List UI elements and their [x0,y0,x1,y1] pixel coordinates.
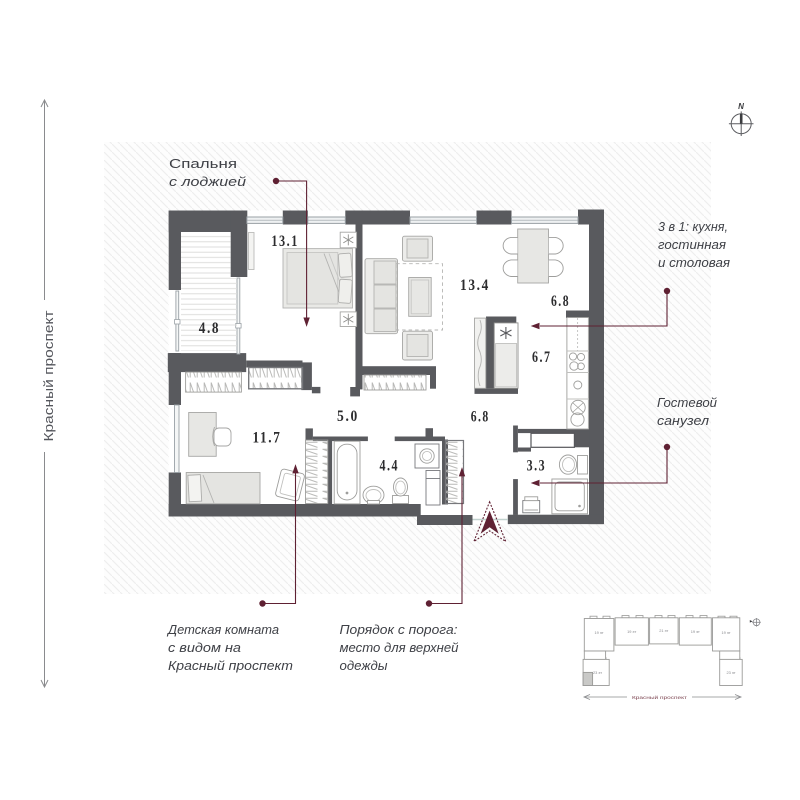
svg-text:Красный проспект: Красный проспект [42,310,56,441]
svg-text:23 эт: 23 эт [726,670,735,675]
svg-text:6.7: 6.7 [532,349,552,366]
svg-text:19 эт: 19 эт [721,630,730,635]
svg-text:Детская комната: Детская комната [166,622,279,637]
svg-text:4.4: 4.4 [380,458,400,475]
svg-text:5.0: 5.0 [337,408,359,425]
svg-text:3.3: 3.3 [527,458,547,475]
svg-text:одежды: одежды [340,658,388,673]
svg-text:19 эт: 19 эт [594,630,603,635]
svg-text:21 эт: 21 эт [659,628,668,633]
svg-text:6.8: 6.8 [471,409,490,426]
svg-text:Красный проспект: Красный проспект [168,658,293,673]
svg-text:13.4: 13.4 [460,277,490,294]
svg-text:3 в 1: кухня,: 3 в 1: кухня, [658,219,728,234]
svg-text:6.8: 6.8 [551,293,570,310]
svg-text:и столовая: и столовая [658,255,730,270]
svg-text:13.1: 13.1 [271,233,299,250]
svg-text:N: N [738,102,744,111]
svg-text:Спальня: Спальня [169,156,237,171]
svg-text:санузел: санузел [657,413,710,428]
svg-text:11.7: 11.7 [253,430,282,447]
svg-text:23 эт: 23 эт [593,670,602,675]
svg-text:Красный проспект: Красный проспект [632,694,688,701]
svg-text:19 эт: 19 эт [627,629,636,634]
svg-text:с видом на: с видом на [168,640,241,655]
svg-text:Гостевой: Гостевой [657,395,717,410]
svg-text:с лоджией: с лоджией [169,174,246,189]
svg-text:Порядок с порога:: Порядок с порога: [340,622,458,637]
svg-text:место для верхней: место для верхней [340,640,459,655]
svg-text:гостинная: гостинная [658,237,726,252]
svg-text:4.8: 4.8 [199,320,221,337]
svg-text:19 эт: 19 эт [691,629,700,634]
